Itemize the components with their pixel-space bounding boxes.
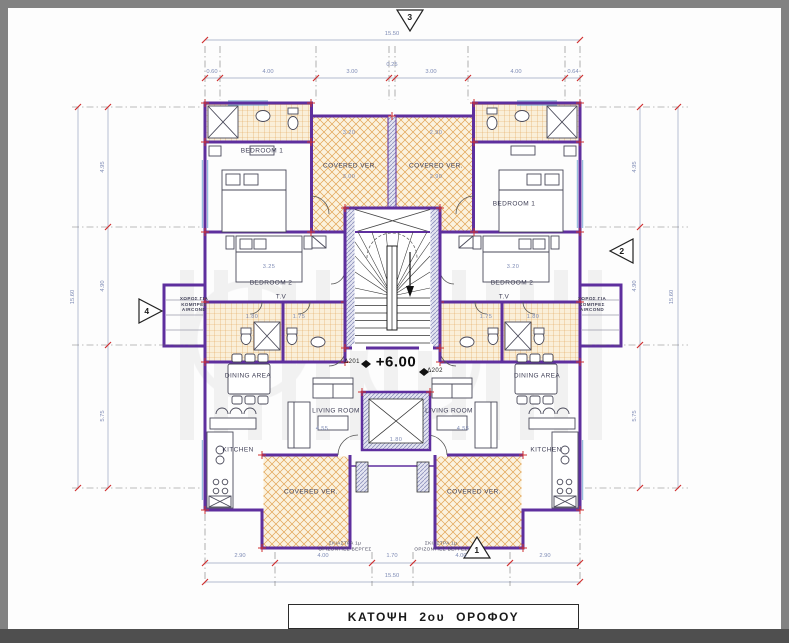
dim-top-seg-0: 0.60 bbox=[206, 69, 217, 75]
label-tv-right: T.V bbox=[499, 294, 510, 301]
room-label-kitchen-left: KITCHEN bbox=[222, 447, 253, 454]
level-ref-left: Δ201 bbox=[344, 359, 360, 365]
dim-top-seg-1: 4.00 bbox=[262, 69, 273, 75]
interior-dim: 1.75 bbox=[480, 314, 493, 320]
drawing-title: ΚΑΤΟΨΗ 2ου ΟΡΟΦΟΥ bbox=[348, 610, 520, 624]
room-label-dining-left: DINING AREA bbox=[225, 373, 271, 380]
dim-left-seg-0: 4.95 bbox=[100, 161, 106, 172]
section-marker-right-number: 2 bbox=[619, 246, 624, 256]
dim-top-seg-2: 3.00 bbox=[346, 69, 357, 75]
room-label-bedroom1-right: BEDROOM 1 bbox=[493, 201, 536, 208]
label-aircond-left: ΧΩΡΟΣ ΓΙΑ ΚΟΜΠΡΕΣ AIRCOND bbox=[174, 296, 214, 313]
level-value: +6.00 bbox=[376, 354, 416, 371]
interior-dim: 1.80 bbox=[390, 437, 403, 443]
room-label-bedroom2-right: BEDROOM 2 bbox=[491, 280, 534, 287]
stair-door-gap-right bbox=[419, 344, 433, 351]
room-label-ver-bottom-right: COVERED VER. bbox=[447, 489, 501, 496]
dim-top-seg-5: 4.00 bbox=[510, 69, 521, 75]
dim-bottom-overall: 15.50 bbox=[385, 573, 400, 579]
room-label-ver-top-left: COVERED VER. bbox=[323, 163, 377, 170]
dim-right-seg-2: 5.75 bbox=[632, 410, 638, 421]
dim-bottom-seg-4: 2.90 bbox=[539, 553, 550, 559]
dim-top-seg-4: 3.00 bbox=[425, 69, 436, 75]
label-aircond-right: ΧΩΡΟΣ ΓΙΑ ΚΟΜΠΡΕΣ AIRCOND bbox=[572, 296, 612, 313]
dim-bottom-seg-2: 1.70 bbox=[386, 553, 397, 559]
dim-right-seg-1: 4.90 bbox=[632, 280, 638, 291]
dim-right-seg-0: 4.95 bbox=[632, 161, 638, 172]
room-label-kitchen-right: KITCHEN bbox=[530, 447, 561, 454]
title-block: ΚΑΤΟΨΗ 2ου ΟΡΟΦΟΥ bbox=[288, 604, 579, 629]
dim-top-overall: 15.50 bbox=[385, 31, 400, 37]
room-label-dining-right: DINING AREA bbox=[514, 373, 560, 380]
interior-dim: 1.75 bbox=[293, 314, 306, 320]
dim-bottom-seg-0: 2.90 bbox=[234, 553, 245, 559]
interior-dim: 2.90 bbox=[430, 174, 443, 180]
room-label-bedroom2-left: BEDROOM 2 bbox=[250, 280, 293, 287]
dim-right-overall: 15.60 bbox=[669, 290, 675, 305]
terrace-column-left bbox=[356, 462, 368, 492]
interior-dim: 3.00 bbox=[343, 174, 356, 180]
drawing-viewport: BEDROOM 1 BEDROOM 1 BEDROOM 2 BEDROOM 2 … bbox=[0, 0, 789, 643]
label-tv-left: T.V bbox=[276, 294, 287, 301]
room-label-ver-top-right: COVERED VER. bbox=[409, 163, 463, 170]
interior-dim: 1.80 bbox=[527, 314, 540, 320]
section-marker-left-icon bbox=[139, 299, 162, 323]
dim-left-seg-1: 4.90 bbox=[100, 280, 106, 291]
dim-left-overall: 15.60 bbox=[70, 290, 76, 305]
room-label-bedroom1-left: BEDROOM 1 bbox=[241, 148, 284, 155]
interior-dim: 4.55 bbox=[457, 426, 470, 432]
bottom-frame-band bbox=[0, 629, 789, 643]
stair-wall-left bbox=[347, 210, 355, 347]
section-marker-bottom-number: 1 bbox=[474, 545, 479, 555]
stair-wall-right bbox=[431, 210, 439, 347]
level-ref-right: Δ202 bbox=[427, 368, 443, 374]
dim-bottom-seg-3: 4.00 bbox=[455, 553, 466, 559]
interior-dim: 3.25 bbox=[263, 264, 276, 270]
terrace-column-right bbox=[417, 462, 429, 492]
dim-bottom-seg-1: 4.00 bbox=[317, 553, 328, 559]
room-label-ver-bottom-left: COVERED VER. bbox=[284, 489, 338, 496]
section-marker-left-number: 4 bbox=[144, 306, 149, 316]
dim-top-seg-3: 0.25 bbox=[386, 62, 397, 68]
room-label-living-left: LIVING ROOM bbox=[312, 408, 360, 415]
room-label-living-right: LIVING ROOM bbox=[425, 408, 473, 415]
interior-dim: 3.20 bbox=[507, 264, 520, 270]
interior-dim: 3.20 bbox=[343, 130, 356, 136]
interior-dim: 1.80 bbox=[246, 314, 259, 320]
interior-dim: 2.90 bbox=[430, 130, 443, 136]
note-shading-left: ΣΚΙΑΣΤΡΑ 1μ ΟΡΙΖΟΝΤΙΕΣ ΒΕΡΓΕΣ bbox=[313, 541, 377, 552]
floor-plan-canvas bbox=[0, 0, 789, 643]
dim-left-seg-2: 5.75 bbox=[100, 410, 106, 421]
note-shading-right: ΣΚΙΑΣΤΡΑ 1μ ΟΡΙΖΟΝΤΙΕΣ ΒΕΡΓΕΣ bbox=[409, 541, 473, 552]
stair-door-gap-left bbox=[352, 344, 366, 351]
dim-top-seg-6: 0.64 bbox=[567, 69, 578, 75]
section-marker-top-number: 3 bbox=[407, 12, 412, 22]
interior-dim: 4.55 bbox=[316, 426, 329, 432]
